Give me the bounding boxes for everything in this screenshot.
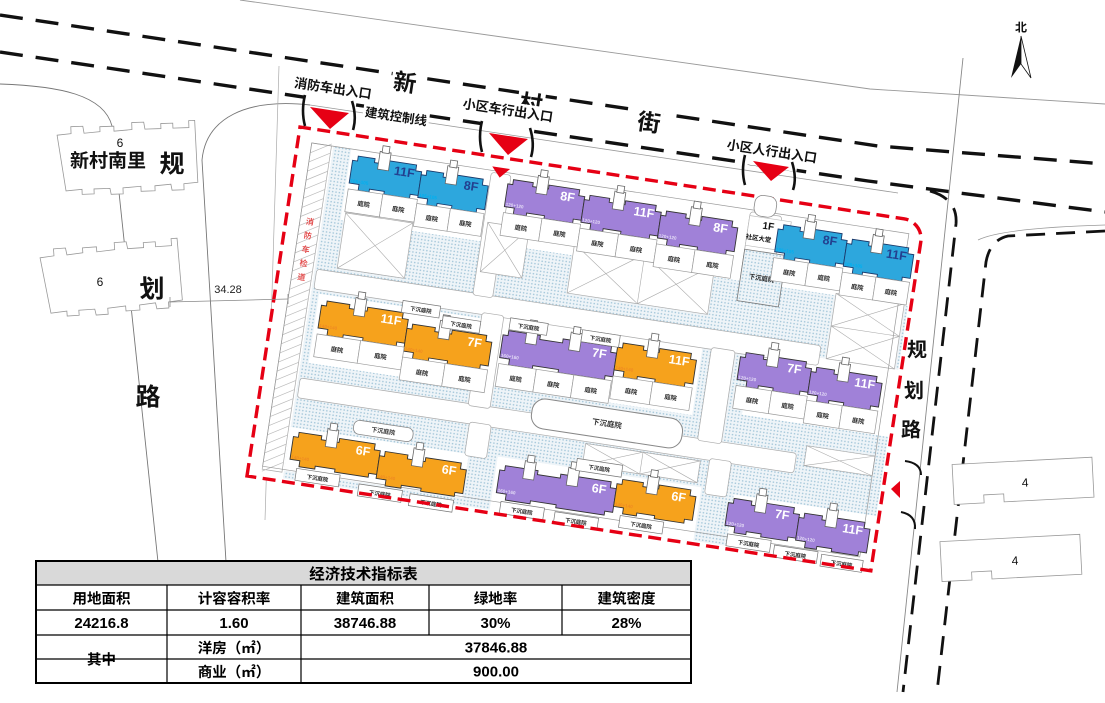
svg-text:8F: 8F [712,220,729,236]
svg-text:6F: 6F [670,489,687,505]
svg-text:4: 4 [1011,554,1019,568]
svg-text:6F: 6F [591,481,608,497]
svg-text:900.00: 900.00 [473,664,519,681]
svg-text:24216.8: 24216.8 [74,615,128,632]
svg-text:34.28: 34.28 [214,284,242,296]
svg-text:7F: 7F [591,346,608,362]
svg-text:1.60: 1.60 [219,615,248,632]
svg-text:37846.88: 37846.88 [465,640,528,657]
svg-text:4: 4 [1021,476,1029,490]
svg-text:7F: 7F [786,361,803,377]
svg-text:8F: 8F [559,189,576,205]
svg-text:30%: 30% [480,615,510,632]
svg-text:28%: 28% [611,615,641,632]
svg-text:7F: 7F [466,335,483,351]
svg-text:6F: 6F [355,443,372,459]
svg-text:6: 6 [117,136,124,150]
svg-text:7F: 7F [774,507,791,523]
svg-text:6: 6 [97,275,104,289]
svg-text:8F: 8F [463,178,480,194]
svg-text:6F: 6F [441,462,458,478]
svg-text:8F: 8F [822,233,839,249]
svg-text:38746.88: 38746.88 [334,615,397,632]
svg-text:1F: 1F [762,221,775,234]
